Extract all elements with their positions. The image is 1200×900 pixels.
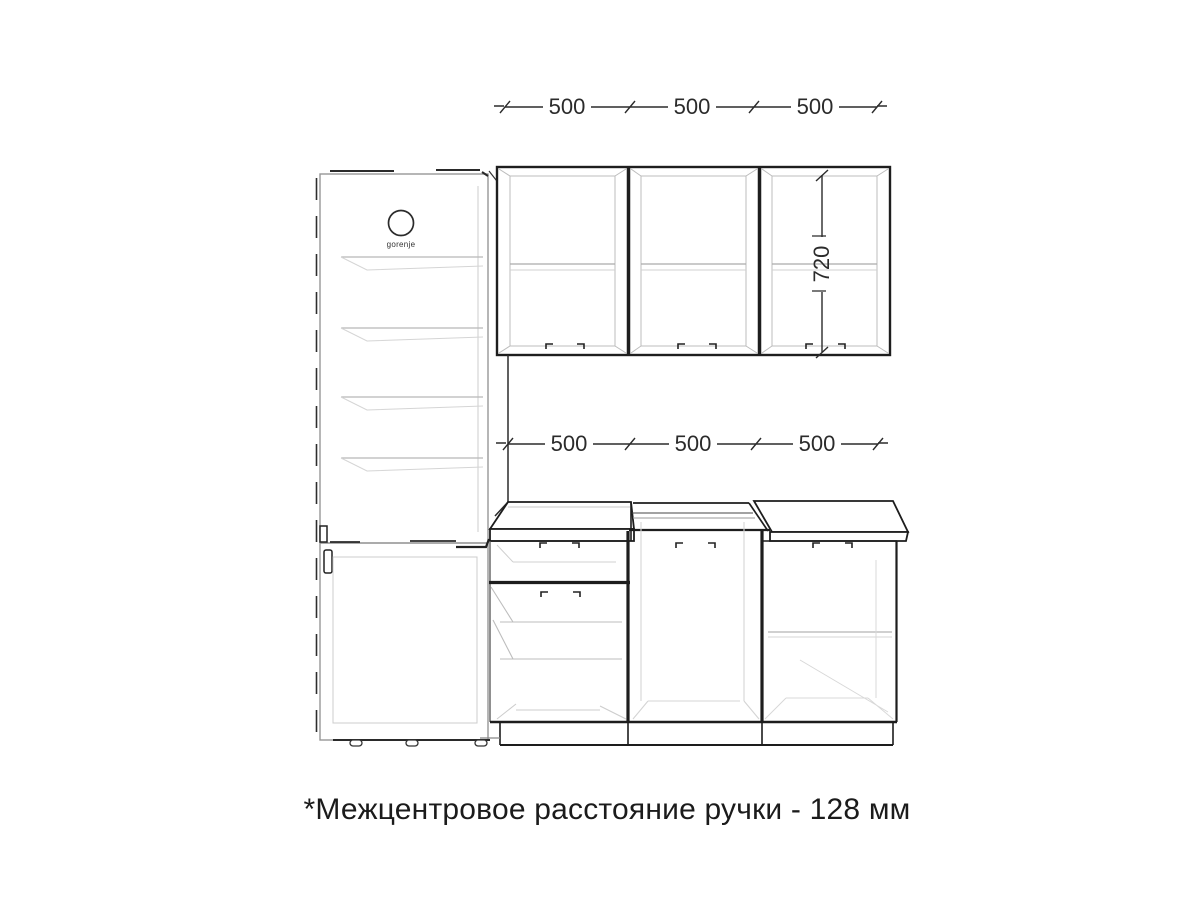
dim-height-720: 720: [809, 246, 834, 283]
fridge-brand-label: gorenje: [387, 240, 416, 249]
base-cabinet-interiors: [491, 522, 893, 719]
fridge-upper-door-handle: [320, 526, 327, 542]
fridge: gorenje: [317, 170, 491, 746]
dim-base-1: 500: [551, 431, 588, 456]
worktop-left: [490, 502, 634, 541]
dim-base-2: 500: [675, 431, 712, 456]
kitchen-elevation-drawing: 500 500 500 gorenje: [0, 0, 1200, 900]
dim-top-1: 500: [549, 94, 586, 119]
side-panel-edge-line: [495, 355, 508, 516]
dim-base-3: 500: [799, 431, 836, 456]
base-hinge-marks: [540, 543, 852, 597]
base-cabinets: [480, 501, 908, 745]
worktop-right: [754, 501, 908, 541]
plinth: [480, 722, 897, 745]
upper-cabinets: 720: [489, 167, 890, 358]
kitchen-drawing-page: 500 500 500 gorenje: [0, 0, 1200, 900]
dim-top-3: 500: [797, 94, 834, 119]
base-cabinet-structure: [489, 531, 897, 722]
fridge-lower-door-handle: [324, 550, 332, 573]
handle-distance-note: *Межцентровое расстояние ручки - 128 мм: [304, 793, 911, 826]
dim-top-2: 500: [674, 94, 711, 119]
open-top-frame: [629, 503, 773, 541]
